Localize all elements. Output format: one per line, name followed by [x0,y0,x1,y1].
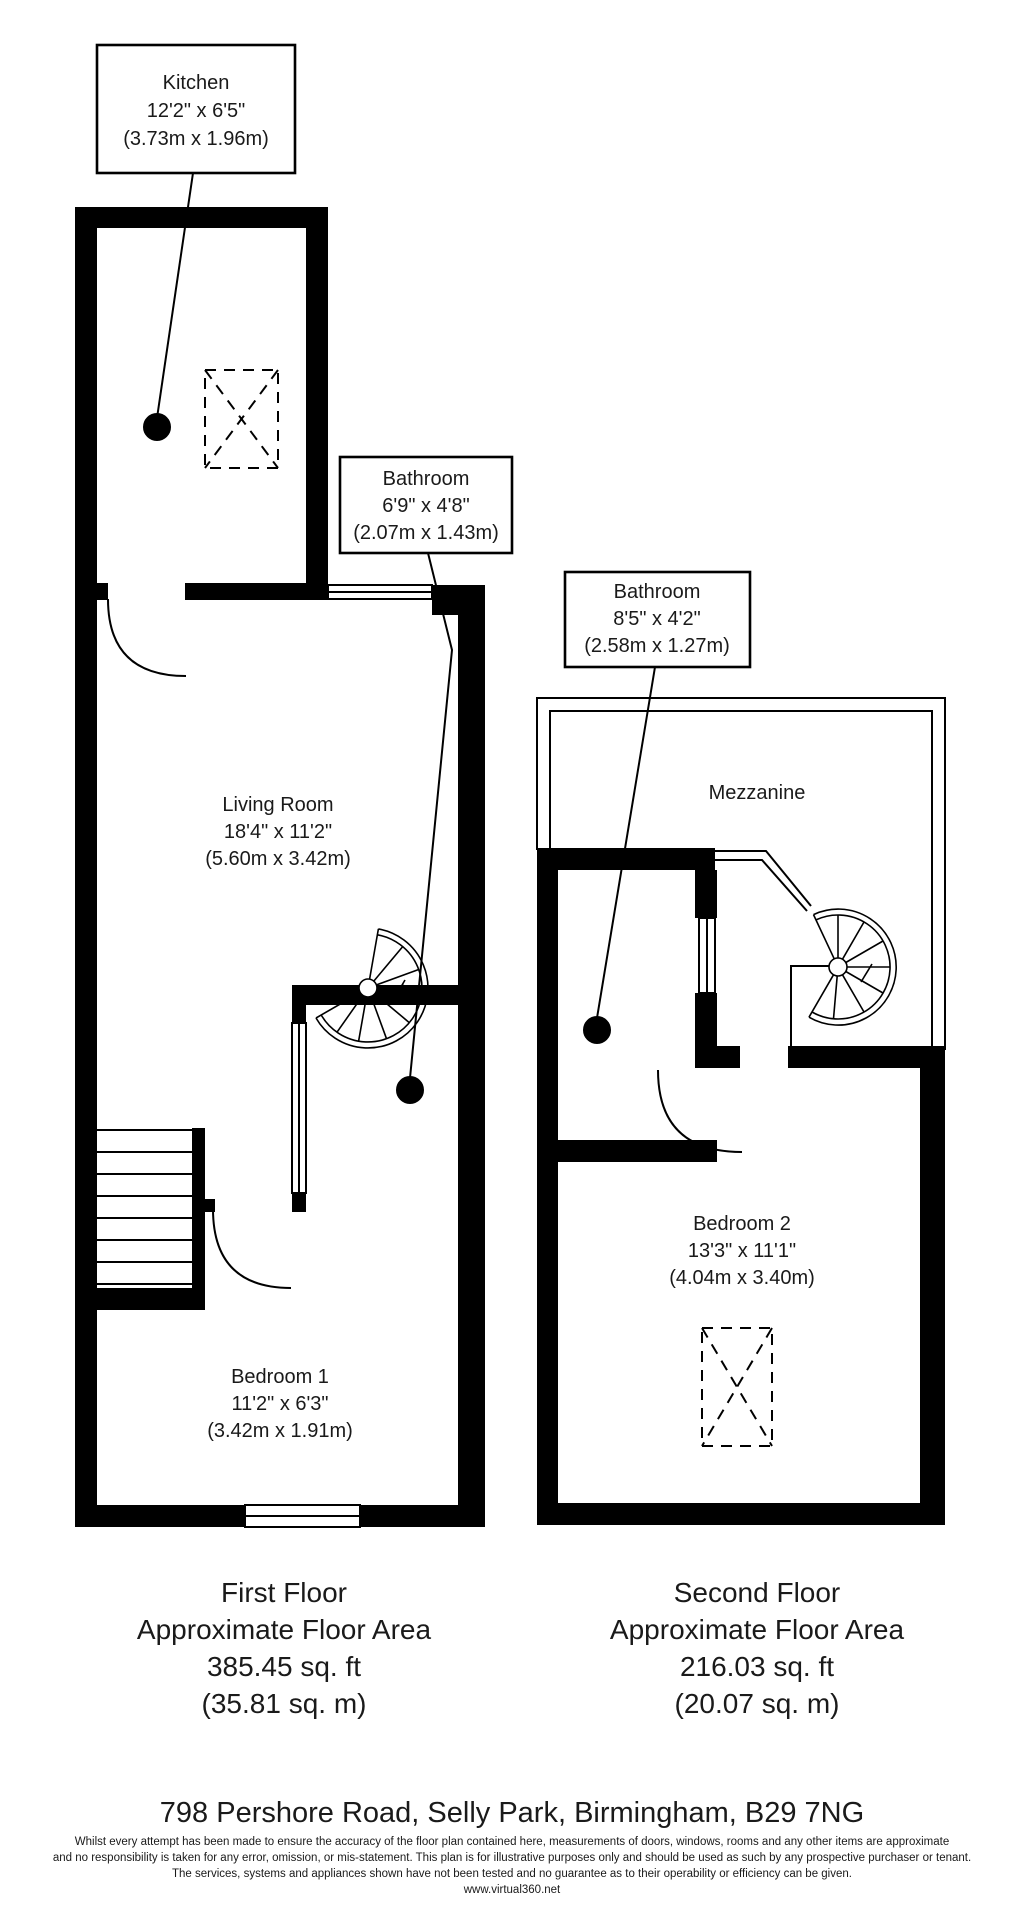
disclaimer-line-2: and no responsibility is taken for any e… [53,1852,971,1864]
wall [458,585,485,1527]
disclaimer-line-1: Whilst every attempt has been made to en… [75,1836,949,1848]
bathroom-ff-label-name: Bathroom [383,468,470,490]
living-room-metric: (5.60m x 3.42m) [205,848,351,870]
bedroom1-imperial: 11'2" x 6'3" [231,1393,328,1415]
second-floor-summary: Second Floor Approximate Floor Area 216.… [610,1577,905,1719]
banister [715,851,838,1046]
floor-plan-canvas: Kitchen 12'2" x 6'5" (3.73m x 1.96m) Bat… [0,0,1024,1911]
bathroom-sf-label-name: Bathroom [614,581,701,603]
second-floor-plan [537,698,945,1525]
wall [695,1046,740,1068]
wall [537,848,558,1525]
door-arc-icon [213,1209,291,1288]
first-floor-title: First Floor [221,1577,347,1608]
bedroom2-name: Bedroom 2 [693,1213,791,1235]
bedroom2-imperial: 13'3" x 11'1" [688,1240,796,1262]
wall [537,848,715,870]
wall [192,1128,205,1310]
spiral-staircase [809,909,896,1025]
spiral-hub [829,958,847,976]
bedroom2-metric: (4.04m x 3.40m) [669,1267,815,1289]
second-floor-windows [699,918,715,993]
bathroom-ff-label-metric: (2.07m x 1.43m) [353,522,499,544]
living-room-name: Living Room [222,794,333,816]
property-address: 798 Pershore Road, Selly Park, Birmingha… [160,1797,864,1829]
floor-plan-page: Kitchen 12'2" x 6'5" (3.73m x 1.96m) Bat… [0,0,1024,1911]
bathroom-sf-leader-line [597,667,655,1018]
first-floor-area-ft: 385.45 sq. ft [207,1651,361,1682]
wall [695,993,717,1048]
wall [537,1503,945,1525]
second-floor-subtitle: Approximate Floor Area [610,1614,905,1645]
bedroom1-name: Bedroom 1 [231,1366,329,1388]
first-floor-subtitle: Approximate Floor Area [137,1614,432,1645]
bathroom-ff-label-imperial: 6'9" x 4'8" [382,495,469,517]
wall [75,207,97,1527]
kitchen-label-imperial: 12'2" x 6'5" [147,100,246,122]
second-floor-walls [537,848,945,1525]
first-floor-summary: First Floor Approximate Floor Area 385.4… [137,1577,432,1719]
bathroom-sf-label-metric: (2.58m x 1.27m) [584,635,730,657]
second-floor-title: Second Floor [674,1577,841,1608]
wall [920,1046,945,1525]
kitchen-label-name: Kitchen [163,72,230,94]
wall [185,583,306,600]
bathroom-ff-label-box: Bathroom 6'9" x 4'8" (2.07m x 1.43m) [340,457,512,553]
door-arc-icon [108,599,186,676]
staircase [97,1130,192,1284]
wall [75,207,328,228]
wall [292,1193,306,1212]
stair-tread [834,976,838,1019]
kitchen-label-box: Kitchen 12'2" x 6'5" (3.73m x 1.96m) [97,45,295,173]
first-floor-area-m: (35.81 sq. m) [202,1688,367,1719]
bathroom-ff-anchor-dot [397,1077,423,1103]
stair-tread [377,970,419,985]
second-floor-doors [658,1070,742,1152]
fixture-dashed-box [702,1328,772,1446]
wall [537,1140,717,1162]
wall [695,870,717,918]
wall [306,207,328,600]
bedroom1-metric: (3.42m x 1.91m) [207,1420,353,1442]
second-floor-area-m: (20.07 sq. m) [675,1688,840,1719]
second-floor-area-ft: 216.03 sq. ft [680,1651,834,1682]
mezzanine-name: Mezzanine [709,782,806,804]
living-room-imperial: 18'4" x 11'2" [224,821,332,843]
bathroom-sf-label-box: Bathroom 8'5" x 4'2" (2.58m x 1.27m) [565,572,750,667]
kitchen-anchor-dot [144,414,170,440]
wall [292,1005,306,1023]
bathroom-sf-label-imperial: 8'5" x 4'2" [613,608,700,630]
stair-tread [374,947,403,982]
spiral-hub [359,979,377,997]
bathroom-sf-anchor-dot [584,1017,610,1043]
disclaimer-line-3: The services, systems and appliances sho… [172,1868,852,1880]
wall [97,1288,205,1310]
wall [75,583,108,600]
fixture-dashed-box [205,370,278,468]
door-arc-icon [658,1070,742,1152]
kitchen-label-metric: (3.73m x 1.96m) [123,128,269,150]
footer: 798 Pershore Road, Selly Park, Birmingha… [53,1797,971,1896]
mezzanine-railing [537,698,945,1050]
website-url: www.virtual360.net [463,1884,561,1896]
